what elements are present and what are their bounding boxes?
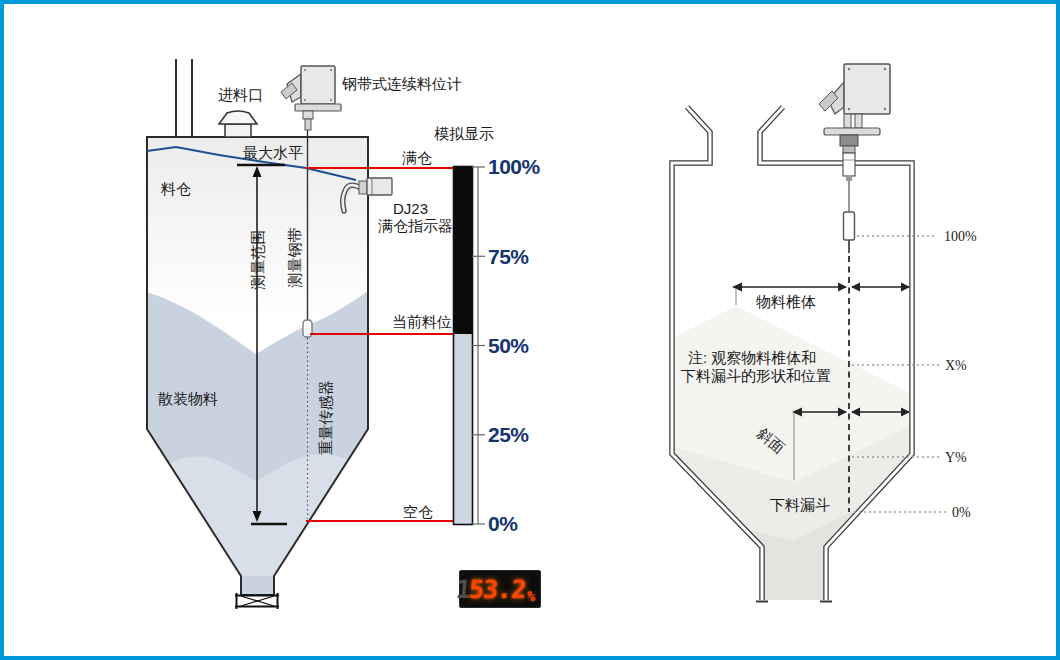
note-line1: 注: 观察物料椎体和: [688, 349, 816, 366]
full-label: 满仓: [402, 149, 432, 166]
inlet-label: 进料口: [218, 86, 263, 103]
empty-label: 空仓: [403, 503, 433, 520]
right-sensing-bob: [844, 212, 855, 240]
outlet-valve: [235, 593, 279, 609]
gauge-tick-75: 75%: [488, 245, 529, 269]
gauge-tick-100: 100%: [488, 155, 540, 179]
mark-100-label: 100%: [944, 229, 977, 245]
inlet-cap: [219, 111, 257, 137]
range-label: 测量范围: [249, 227, 266, 292]
dj23-name-label: 满仓指示器: [378, 217, 453, 234]
device-label: 钢带式连续料位计: [342, 75, 462, 92]
right-silo: [672, 64, 946, 604]
right-sensor-flange: [824, 128, 880, 135]
sensor-housing: [301, 66, 335, 104]
sensor-flange: [295, 104, 341, 111]
gauge-empty-segment: [454, 334, 472, 524]
gauge-tick-50: 50%: [488, 334, 529, 358]
diagram-canvas: 钢带式连续料位计 进料口 最大水平 料仓 满仓 DJ23 满仓指示器 测量范围 …: [0, 0, 1060, 660]
feed-pipe: [176, 59, 192, 137]
max-level-label: 最大水平: [243, 144, 303, 161]
gauge-axis: [472, 167, 485, 524]
gauge-tick-0: 0%: [488, 512, 517, 536]
mark-x-label: X%: [945, 358, 967, 374]
current-level-label: 当前料位: [392, 313, 452, 330]
diagram-shapes: [4, 4, 1060, 660]
dj23-model-label: DJ23: [393, 200, 428, 217]
gauge-title: 模拟显示: [434, 125, 494, 142]
weight-sensor-label: 重量传感器: [317, 378, 334, 458]
display-unit: %: [526, 589, 536, 603]
analog-gauge: [454, 167, 486, 525]
gauge-tick-25: 25%: [488, 423, 529, 447]
bulk-material-label: 散装物料: [158, 390, 218, 407]
left-silo: [147, 59, 453, 609]
right-sensor-housing: [844, 64, 890, 114]
tape-label: 测量钢带: [286, 225, 303, 290]
material-cone-label: 物料椎体: [756, 293, 816, 310]
gauge-filled-segment: [454, 167, 472, 334]
funnel-label: 下料漏斗: [770, 496, 830, 513]
display-value: 53.2: [468, 577, 526, 602]
silo-label: 料仓: [161, 180, 191, 197]
note-line2: 下料漏斗的形状和位置: [681, 367, 831, 384]
digital-level-display: 1 53.2 %: [459, 570, 541, 608]
tape-level-sensor: [281, 66, 341, 130]
mark-y-label: Y%: [945, 450, 967, 466]
mark-0-label: 0%: [952, 505, 971, 521]
